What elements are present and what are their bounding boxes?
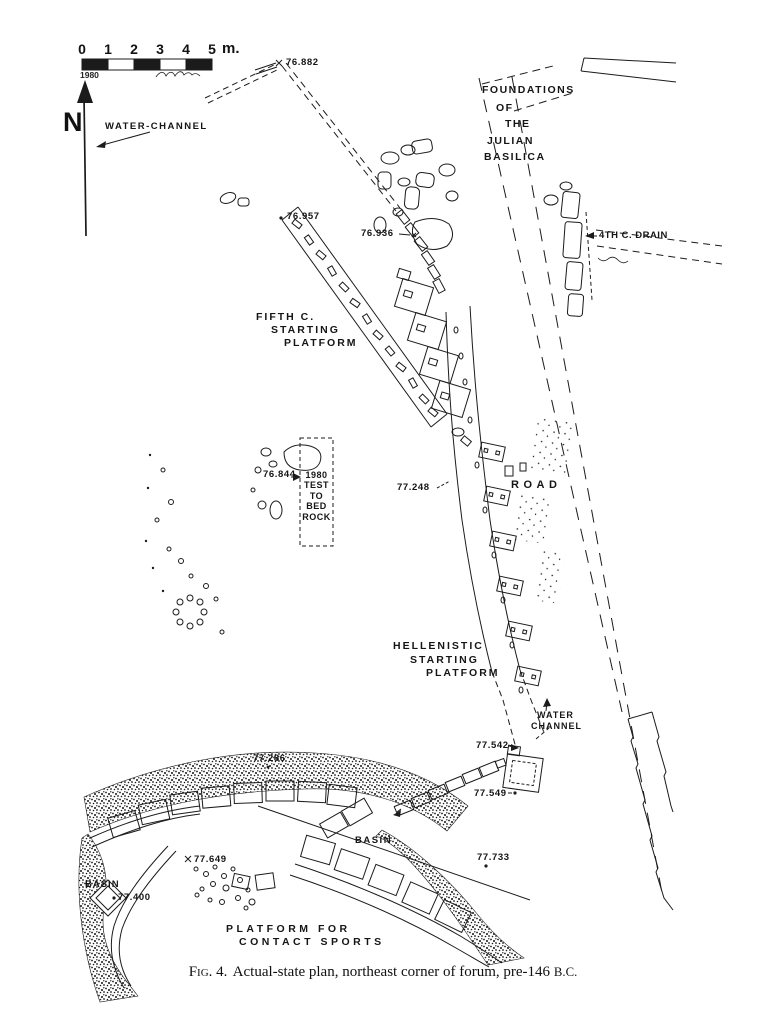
platform-structures bbox=[394, 268, 470, 417]
spot-marker-77-733 bbox=[484, 864, 487, 867]
label-road: ROAD bbox=[511, 479, 561, 491]
label-sports-platform-1: PLATFORM FOR bbox=[226, 923, 351, 935]
stone-scatter-west bbox=[145, 454, 224, 634]
scale-year: 1980 bbox=[80, 70, 99, 80]
label-water-channel-nw: WATER-CHANNEL bbox=[105, 121, 208, 132]
label-basin-sw: BASIN bbox=[85, 879, 120, 890]
elevation-76-882: 76.882 bbox=[286, 57, 319, 68]
water-channel-blocks bbox=[396, 210, 445, 294]
elevation-76-936: 76.936 bbox=[361, 228, 394, 239]
label-hellenistic-2: STARTING bbox=[410, 654, 479, 666]
label-test-trench-line-5: ROCK bbox=[298, 512, 335, 522]
label-basin-mid: BASIN bbox=[355, 835, 392, 846]
figure-caption-number: Fig. 4. bbox=[189, 964, 228, 980]
stone-scatter-north bbox=[219, 138, 458, 249]
spot-marker-77-286 bbox=[267, 766, 270, 769]
plan-page: 0 1 2 3 4 5 m. 1980 N WATER-CHANNEL 76.8… bbox=[0, 0, 766, 1024]
scale-tick-5: 5 bbox=[208, 41, 216, 57]
road-surface-marks bbox=[437, 418, 574, 604]
label-hellenistic-1: HELLENISTIC bbox=[393, 640, 484, 652]
figure-caption: Fig. 4.Actual-state plan, northeast corn… bbox=[0, 964, 766, 981]
label-fifth-platform-1: FIFTH C. bbox=[256, 311, 315, 323]
scale-bar bbox=[82, 59, 212, 77]
spot-marker-77-400 bbox=[112, 896, 115, 899]
fourth-c-drain bbox=[544, 182, 722, 317]
label-water-channel-s-1: WATER bbox=[537, 710, 574, 720]
spot-marker-77-649 bbox=[185, 856, 191, 862]
spot-marker-77-549 bbox=[513, 791, 516, 794]
elevation-77-248: 77.248 bbox=[397, 482, 430, 493]
label-4th-c-drain: 4TH C. DRAIN bbox=[599, 230, 668, 241]
label-foundations-2: OF bbox=[496, 102, 514, 114]
label-sports-platform-2: CONTACT SPORTS bbox=[239, 936, 385, 948]
label-test-trench-line-1: 1980 bbox=[298, 470, 335, 480]
southeast-trench-outline bbox=[628, 712, 673, 910]
label-hellenistic-3: PLATFORM bbox=[426, 667, 500, 679]
scale-unit: m. bbox=[222, 40, 240, 57]
label-fifth-platform-3: PLATFORM bbox=[284, 337, 358, 349]
scale-tick-1: 1 bbox=[104, 41, 112, 57]
label-fifth-platform-2: STARTING bbox=[271, 324, 340, 336]
elevation-77-400: 77.400 bbox=[118, 892, 151, 903]
elevation-77-649: 77.649 bbox=[194, 854, 227, 865]
elevation-77-286: 77.286 bbox=[253, 753, 286, 764]
figure-caption-body: Actual-state plan, northeast corner of f… bbox=[233, 964, 550, 980]
water-channel-nw-lines bbox=[96, 60, 400, 211]
elevation-76-844: 76.844 bbox=[263, 469, 296, 480]
site-plan-drawing bbox=[0, 0, 766, 1024]
label-test-trench-line-3: TO bbox=[298, 491, 335, 501]
northeast-trench-outline bbox=[581, 58, 676, 82]
leader-77-248 bbox=[437, 481, 450, 488]
elevation-77-733: 77.733 bbox=[477, 852, 510, 863]
scale-tick-0: 0 bbox=[78, 41, 86, 57]
label-water-channel-s-2: CHANNEL bbox=[531, 721, 582, 731]
north-label: N bbox=[63, 107, 83, 138]
label-foundations-3: THE bbox=[505, 118, 531, 130]
label-test-trench: 1980 TEST TO BED ROCK bbox=[298, 470, 335, 522]
north-arrow bbox=[77, 80, 93, 236]
elevation-76-957: 76.957 bbox=[287, 211, 320, 222]
scale-tick-2: 2 bbox=[130, 41, 138, 57]
label-foundations-1: FOUNDATIONS bbox=[482, 84, 575, 96]
label-test-trench-line-2: TEST bbox=[298, 480, 335, 490]
label-test-trench-line-4: BED bbox=[298, 501, 335, 511]
elevation-77-542: 77.542 bbox=[476, 740, 509, 751]
surveyor-signature bbox=[156, 72, 200, 77]
scale-tick-4: 4 bbox=[182, 41, 190, 57]
scale-tick-3: 3 bbox=[156, 41, 164, 57]
figure-caption-era: B.C. bbox=[554, 965, 577, 979]
spot-marker-76-882 bbox=[276, 60, 282, 66]
julian-basilica-foundation-lines bbox=[479, 66, 662, 893]
elevation-77-549: 77.549 bbox=[474, 788, 507, 799]
spot-marker-76-957 bbox=[279, 216, 282, 219]
label-foundations-4: JULIAN bbox=[487, 135, 534, 147]
label-foundations-5: BASILICA bbox=[484, 151, 546, 163]
